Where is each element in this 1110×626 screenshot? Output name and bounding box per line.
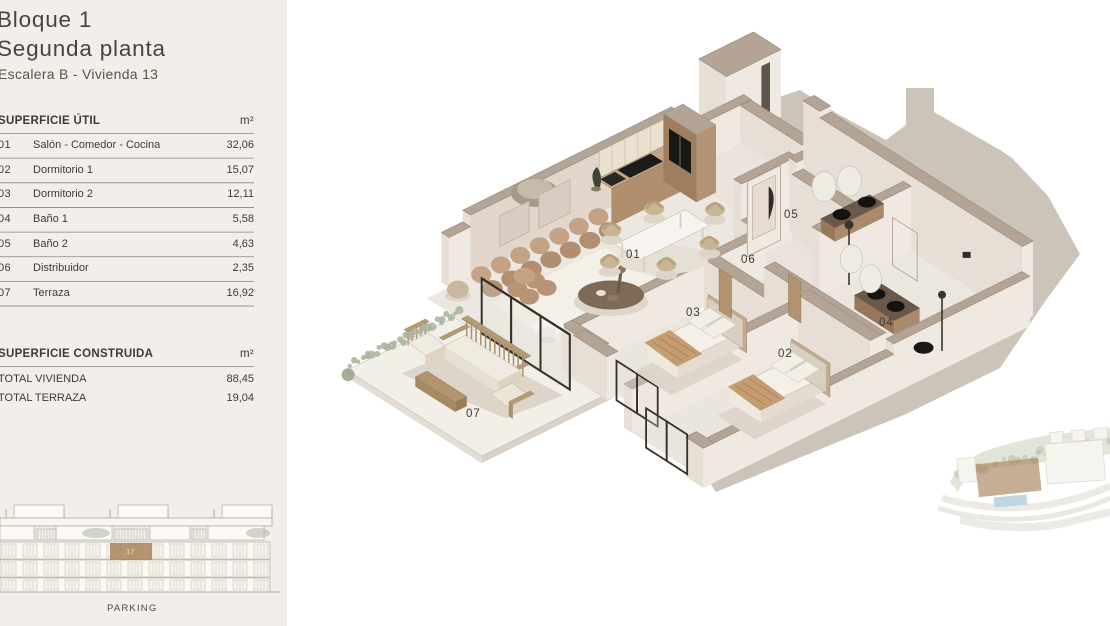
svg-text:17: 17 — [126, 547, 134, 556]
svg-text:07: 07 — [466, 408, 481, 420]
svg-text:05: 05 — [784, 209, 799, 221]
svg-text:PARKING: PARKING — [107, 603, 157, 614]
svg-text:04: 04 — [879, 317, 894, 329]
svg-text:01: 01 — [626, 249, 641, 261]
svg-text:03: 03 — [686, 307, 701, 319]
svg-text:02: 02 — [778, 348, 793, 360]
svg-text:06: 06 — [741, 254, 756, 266]
